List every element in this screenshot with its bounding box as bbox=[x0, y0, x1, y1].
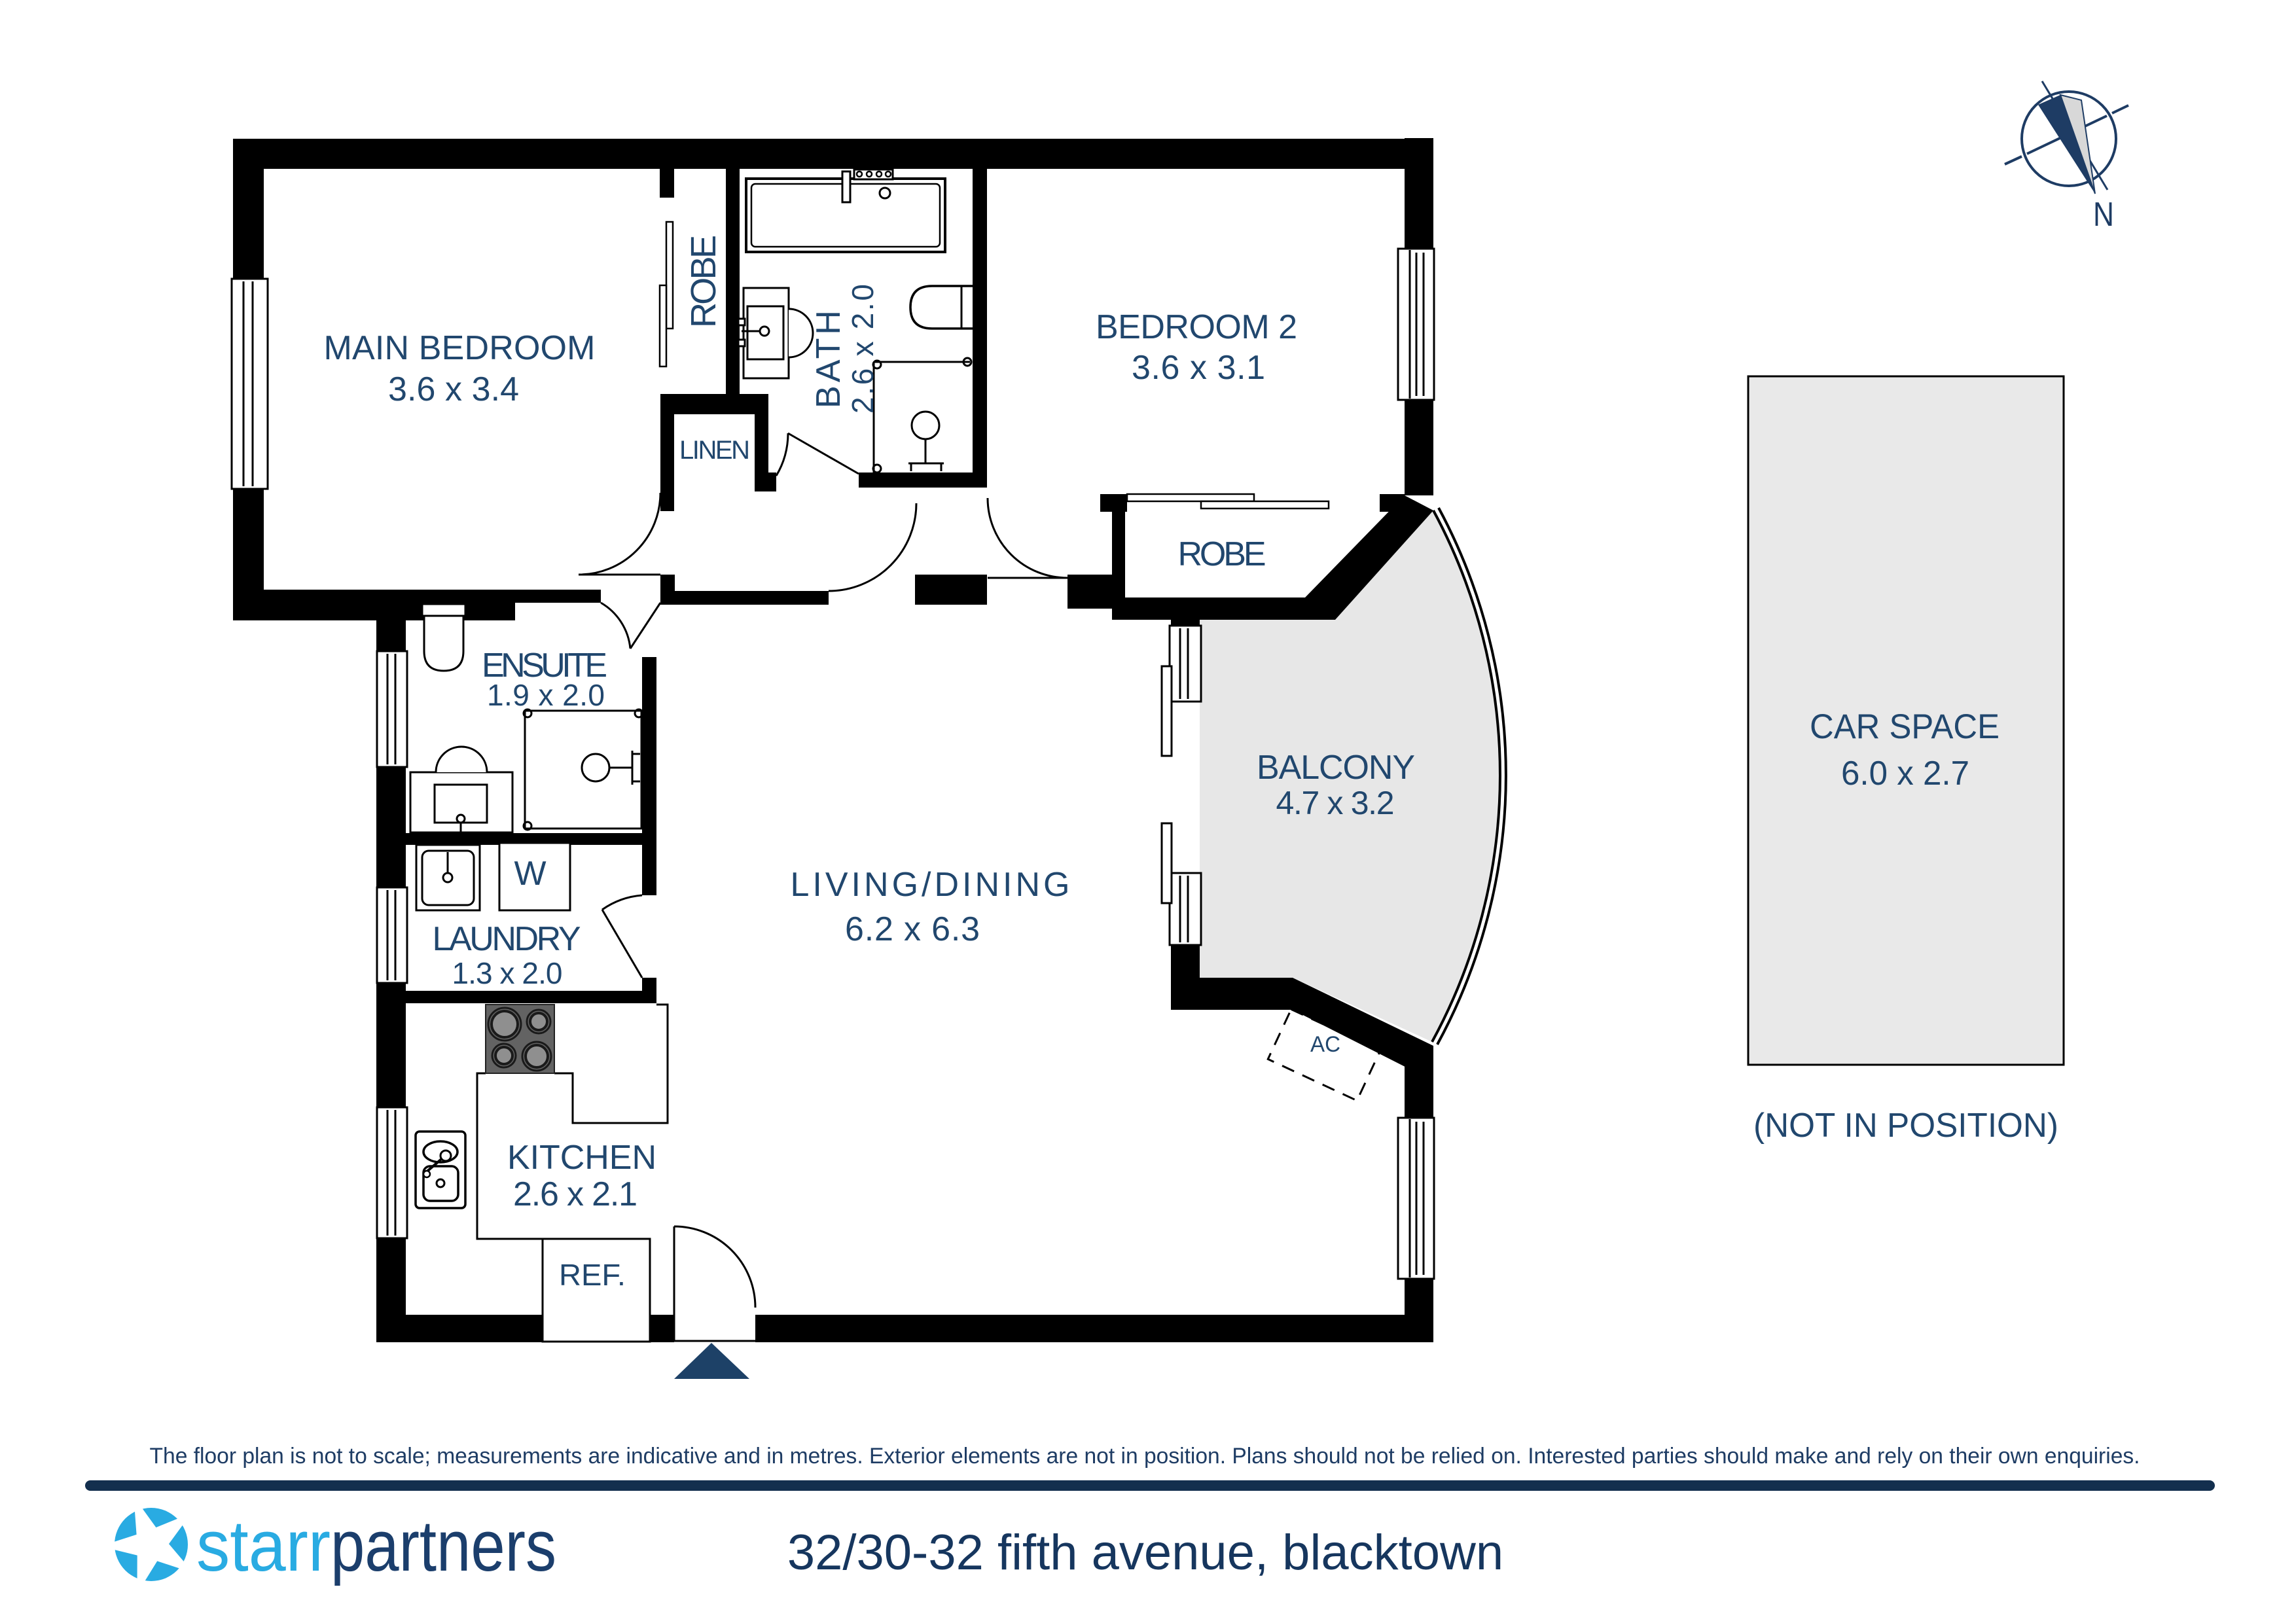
svg-text:ROBE: ROBE bbox=[684, 235, 723, 328]
svg-text:LAUNDRY: LAUNDRY bbox=[433, 920, 581, 958]
svg-text:1.3 x 2.0: 1.3 x 2.0 bbox=[452, 956, 563, 990]
svg-text:2.6 x 2.0: 2.6 x 2.0 bbox=[846, 284, 880, 414]
svg-text:2.6 x 2.1: 2.6 x 2.1 bbox=[513, 1175, 637, 1213]
svg-text:3.6 x 3.1: 3.6 x 3.1 bbox=[1132, 349, 1265, 387]
svg-text:AC: AC bbox=[1310, 1032, 1340, 1057]
svg-text:4.7 x 3.2: 4.7 x 3.2 bbox=[1276, 785, 1395, 821]
svg-text:3.6 x 3.4: 3.6 x 3.4 bbox=[388, 370, 519, 408]
svg-text:(NOT IN POSITION): (NOT IN POSITION) bbox=[1753, 1107, 2058, 1145]
svg-text:BATH: BATH bbox=[810, 310, 848, 408]
svg-text:1.9 x 2.0: 1.9 x 2.0 bbox=[487, 678, 605, 712]
svg-text:LIVING/DINING: LIVING/DINING bbox=[791, 866, 1070, 904]
svg-text:6.0 x 2.7: 6.0 x 2.7 bbox=[1841, 755, 1969, 793]
svg-text:BEDROOM 2: BEDROOM 2 bbox=[1096, 308, 1297, 346]
svg-text:N: N bbox=[2093, 196, 2114, 234]
svg-text:KITCHEN: KITCHEN bbox=[507, 1139, 656, 1177]
svg-text:ROBE: ROBE bbox=[1178, 535, 1266, 573]
svg-text:CAR SPACE: CAR SPACE bbox=[1810, 707, 2000, 746]
svg-text:MAIN BEDROOM: MAIN BEDROOM bbox=[324, 329, 596, 367]
svg-text:32/30-32 fifth avenue, blackto: 32/30-32 fifth avenue, blacktown bbox=[787, 1525, 1503, 1580]
svg-text:REF.: REF. bbox=[559, 1258, 626, 1292]
svg-text:starr: starr bbox=[196, 1506, 331, 1586]
svg-text:BALCONY: BALCONY bbox=[1257, 749, 1415, 787]
svg-text:The floor plan is not to scale: The floor plan is not to scale; measurem… bbox=[150, 1444, 2140, 1469]
svg-text:partners: partners bbox=[331, 1506, 556, 1586]
svg-text:6.2 x 6.3: 6.2 x 6.3 bbox=[845, 910, 980, 948]
svg-text:LINEN: LINEN bbox=[679, 436, 750, 465]
svg-text:W: W bbox=[514, 855, 546, 893]
